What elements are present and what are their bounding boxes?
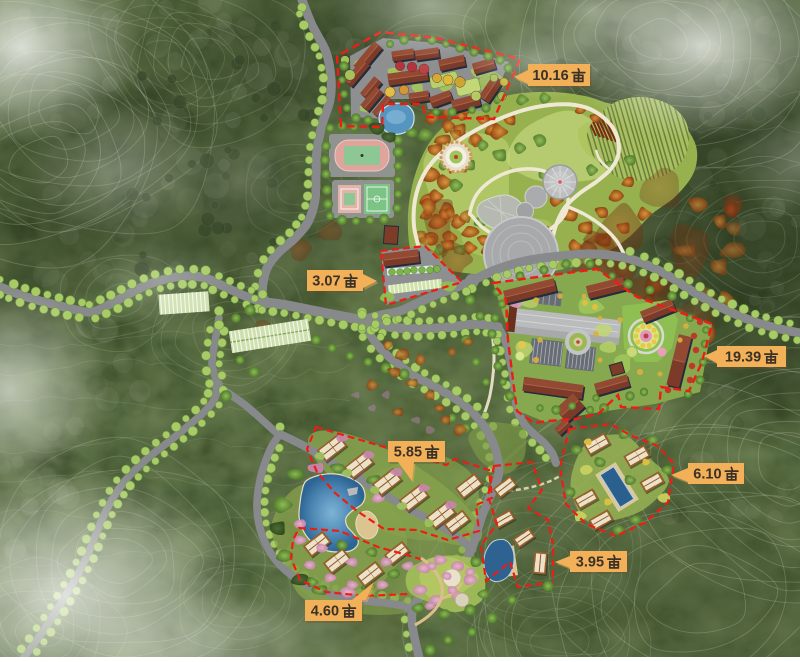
svg-text:19.39: 19.39 xyxy=(725,350,761,366)
svg-text:3.95: 3.95 xyxy=(576,555,604,571)
svg-text:6.10: 6.10 xyxy=(693,467,721,483)
svg-text:4.60: 4.60 xyxy=(311,604,339,620)
svg-text:3.07: 3.07 xyxy=(312,274,340,290)
svg-text:10.16: 10.16 xyxy=(532,68,568,84)
svg-text:5.85: 5.85 xyxy=(394,445,422,461)
